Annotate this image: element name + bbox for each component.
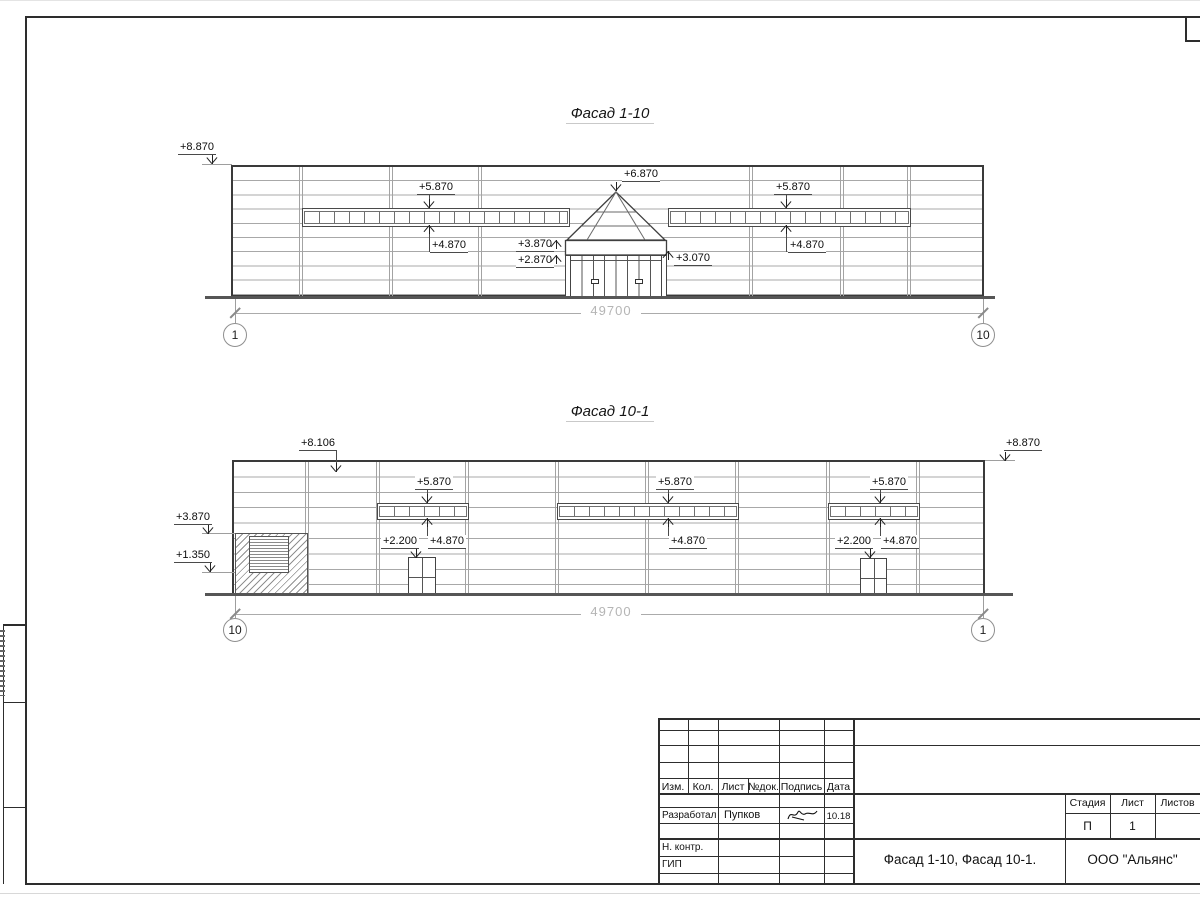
- elevation-arrow-down: [865, 549, 875, 558]
- louver-grille: [249, 536, 289, 573]
- drawing-sheet: Фасад 1-10 +8.870 +5.87: [0, 0, 1200, 900]
- tb-line: [658, 745, 1200, 746]
- elevation-label: +5.870: [774, 181, 812, 195]
- page-edge-bottom: [0, 893, 1200, 894]
- entrance-glazed-doors: [570, 255, 662, 298]
- facade2-pilaster: [735, 462, 739, 594]
- facade2-dimension-text: 49700: [581, 604, 641, 619]
- transom-line: [571, 260, 661, 261]
- tb-col-list: Лист: [718, 781, 748, 793]
- window-panes: [379, 506, 467, 517]
- elevation-arrow-down: [611, 182, 621, 191]
- elevation-label: +2.870: [516, 254, 554, 268]
- tb-doc-title: Фасад 1-10, Фасад 10-1.: [855, 852, 1065, 867]
- elevation-label: +5.870: [870, 476, 908, 490]
- tb-developed-name: Пупков: [724, 809, 760, 821]
- signature: [784, 808, 820, 822]
- elevation-arrow-down: [411, 549, 421, 558]
- elevation-arrow-up: [422, 518, 432, 527]
- tb-stage-value: П: [1065, 819, 1110, 833]
- elevation-arrow-down: [205, 563, 215, 572]
- elevation-arrow-down: [1000, 452, 1010, 461]
- elevation-arrow-up: [551, 255, 561, 264]
- facade1-pilaster: [907, 167, 911, 296]
- facade1-title-underline: [566, 123, 654, 124]
- elevation-label: +4.870: [430, 239, 468, 253]
- elevation-label: +4.870: [788, 239, 826, 253]
- frame-bottom-line: [25, 883, 1200, 885]
- facade1-pilaster: [478, 167, 482, 296]
- frame-corner-box-vline: [1185, 16, 1187, 42]
- elevation-arrow-down: [663, 494, 673, 503]
- elevation-arrow-down: [424, 199, 434, 208]
- tb-line: [824, 718, 825, 883]
- tb-line: [658, 823, 854, 824]
- axis-bubble-10: 10: [223, 618, 247, 642]
- tb-line: [658, 718, 660, 883]
- tb-line: [718, 718, 719, 883]
- facade2-window-band-c: [828, 503, 920, 520]
- tb-line: [658, 873, 854, 874]
- axis-bubble-10: 10: [971, 323, 995, 347]
- tb-ncontr-label: Н. контр.: [662, 842, 703, 853]
- frame-left-line: [25, 16, 27, 885]
- facade1-title: Фасад 1-10: [530, 105, 690, 122]
- axis-bubble-1: 1: [223, 323, 247, 347]
- tb-line: [658, 856, 854, 857]
- leader-line: [336, 450, 337, 463]
- title-block: Изм. Кол. Лист №док. Подпись Дата Разраб…: [658, 718, 1200, 883]
- leader-line: [786, 234, 787, 252]
- window-panes: [670, 211, 909, 224]
- frame-top-line: [25, 16, 1200, 18]
- elevation-label: +4.870: [881, 535, 919, 549]
- facade2-pilaster: [465, 462, 469, 594]
- axis-bubble-1: 1: [971, 618, 995, 642]
- tb-sheet-value: 1: [1110, 819, 1155, 833]
- tb-sheets-label: Листов: [1155, 797, 1200, 809]
- facade1-pilaster: [299, 167, 303, 296]
- elevation-label: +2.200: [381, 535, 419, 549]
- level-line: [202, 164, 232, 165]
- tb-gip-label: ГИП: [662, 859, 682, 870]
- elevation-arrow-up: [424, 225, 434, 234]
- elevation-label: +4.870: [428, 535, 466, 549]
- elevation-label: +2.200: [835, 535, 873, 549]
- facade2-pilaster: [826, 462, 830, 594]
- door-handle: [635, 279, 643, 284]
- facade2-pilaster: [645, 462, 649, 594]
- elevation-arrow-down: [331, 463, 341, 472]
- elevation-arrow-up: [875, 518, 885, 527]
- facade2-title: Фасад 10-1: [530, 403, 690, 420]
- left-strip-divider-2: [3, 702, 26, 703]
- window-panes: [559, 506, 737, 517]
- facade2-pilaster: [555, 462, 559, 594]
- facade1-window-band-left: [302, 208, 570, 227]
- tb-line: [658, 778, 854, 779]
- elevation-label: +5.870: [417, 181, 455, 195]
- facade2-pilaster: [376, 462, 380, 594]
- tb-line: [658, 807, 854, 808]
- elevation-label: +8.870: [1004, 437, 1042, 451]
- elevation-label: +3.870: [174, 511, 212, 525]
- left-strip-divider-1: [3, 624, 26, 626]
- level-line: [202, 572, 235, 573]
- tb-line: [658, 793, 1200, 795]
- elevation-label: +3.870: [516, 238, 554, 252]
- window-panes: [830, 506, 918, 517]
- tb-line: [658, 730, 854, 731]
- elevation-arrow-down: [207, 155, 217, 164]
- facade1-pilaster: [749, 167, 753, 296]
- tb-line: [779, 718, 780, 883]
- tb-line: [658, 718, 1200, 720]
- elevation-arrow-down: [422, 494, 432, 503]
- extension-line: [983, 596, 984, 618]
- elevation-arrow-up: [663, 518, 673, 527]
- entrance-canopy-roof: [563, 190, 669, 256]
- elevation-arrow-up: [551, 240, 561, 249]
- tb-col-izm: Изм.: [658, 781, 688, 793]
- facade1-ground-line: [205, 296, 995, 299]
- elevation-label: +5.870: [656, 476, 694, 490]
- rotated-text-fragment: [0, 630, 5, 696]
- tb-col-kol: Кол.: [688, 781, 718, 793]
- window-panes: [304, 211, 568, 224]
- tb-line: [1065, 813, 1200, 814]
- tb-developed-label: Разработал: [662, 810, 716, 821]
- facade1-dimension-text: 49700: [581, 303, 641, 318]
- tb-line: [658, 838, 1200, 840]
- facade2-door-a: [408, 557, 436, 594]
- elevation-label: +4.870: [669, 535, 707, 549]
- tb-line: [658, 762, 854, 763]
- elevation-arrow-up: [781, 225, 791, 234]
- elevation-arrow-up: [663, 251, 673, 260]
- facade2-title-underline: [566, 421, 654, 422]
- elevation-label: +8.106: [299, 437, 337, 451]
- elevation-arrow-down: [203, 525, 213, 534]
- facade2-door-c: [860, 558, 887, 594]
- tb-developed-date: 10.18: [824, 811, 853, 822]
- tb-col-ndok: №док.: [748, 781, 779, 793]
- elevation-arrow-down: [875, 494, 885, 503]
- facade2-window-band-b: [557, 503, 739, 520]
- elevation-arrow-down: [781, 199, 791, 208]
- facade1-pilaster: [840, 167, 844, 296]
- tb-col-podpis: Подпись: [779, 781, 824, 793]
- elevation-label: +6.870: [622, 168, 660, 182]
- elevation-label: +3.070: [674, 252, 712, 266]
- elevation-label: +1.350: [174, 549, 212, 563]
- tb-col-data: Дата: [824, 781, 853, 793]
- tb-company: ООО "Альянс": [1065, 852, 1200, 867]
- door-handle: [591, 279, 599, 284]
- left-strip-divider-3: [3, 807, 26, 808]
- facade2-pilaster: [916, 462, 920, 594]
- elevation-label: +5.870: [415, 476, 453, 490]
- tb-stage-label: Стадия: [1065, 797, 1110, 809]
- tb-sheet-label: Лист: [1110, 797, 1155, 809]
- page-edge-top: [0, 0, 1200, 1]
- facade1-pilaster: [389, 167, 393, 296]
- frame-corner-box-hline: [1185, 40, 1200, 42]
- elevation-label: +8.870: [178, 141, 216, 155]
- facade2-ground-line: [205, 593, 1013, 596]
